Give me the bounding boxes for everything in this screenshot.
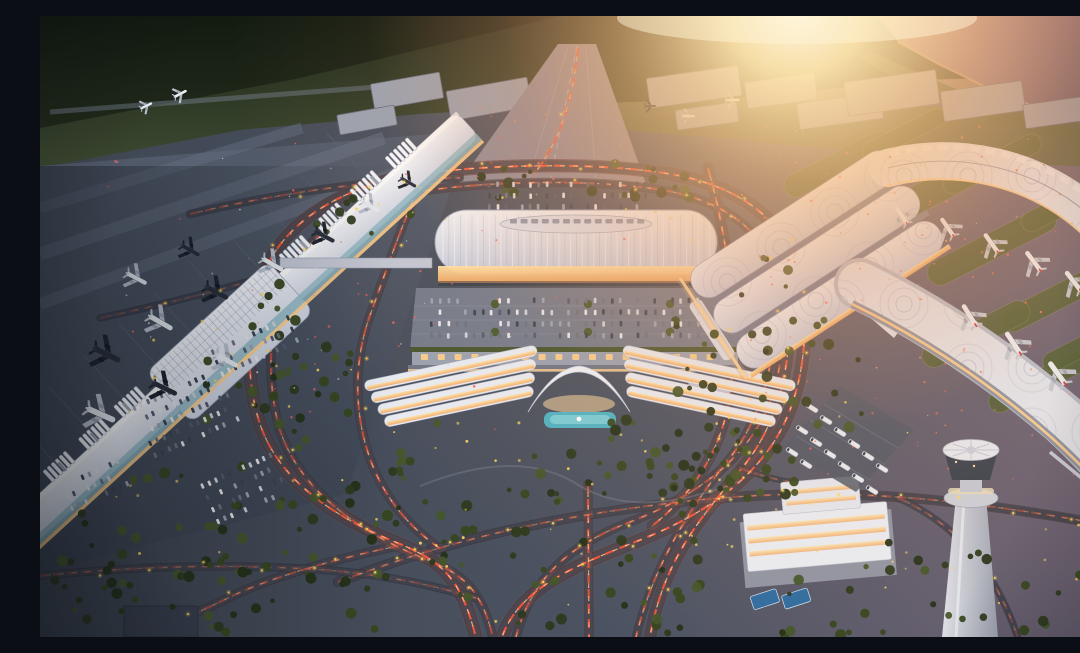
airport-rendering: Aerial sunset rendering of a large airpo…: [40, 16, 1080, 637]
scene-canvas: [40, 16, 1080, 637]
atmosphere: [40, 16, 1080, 637]
